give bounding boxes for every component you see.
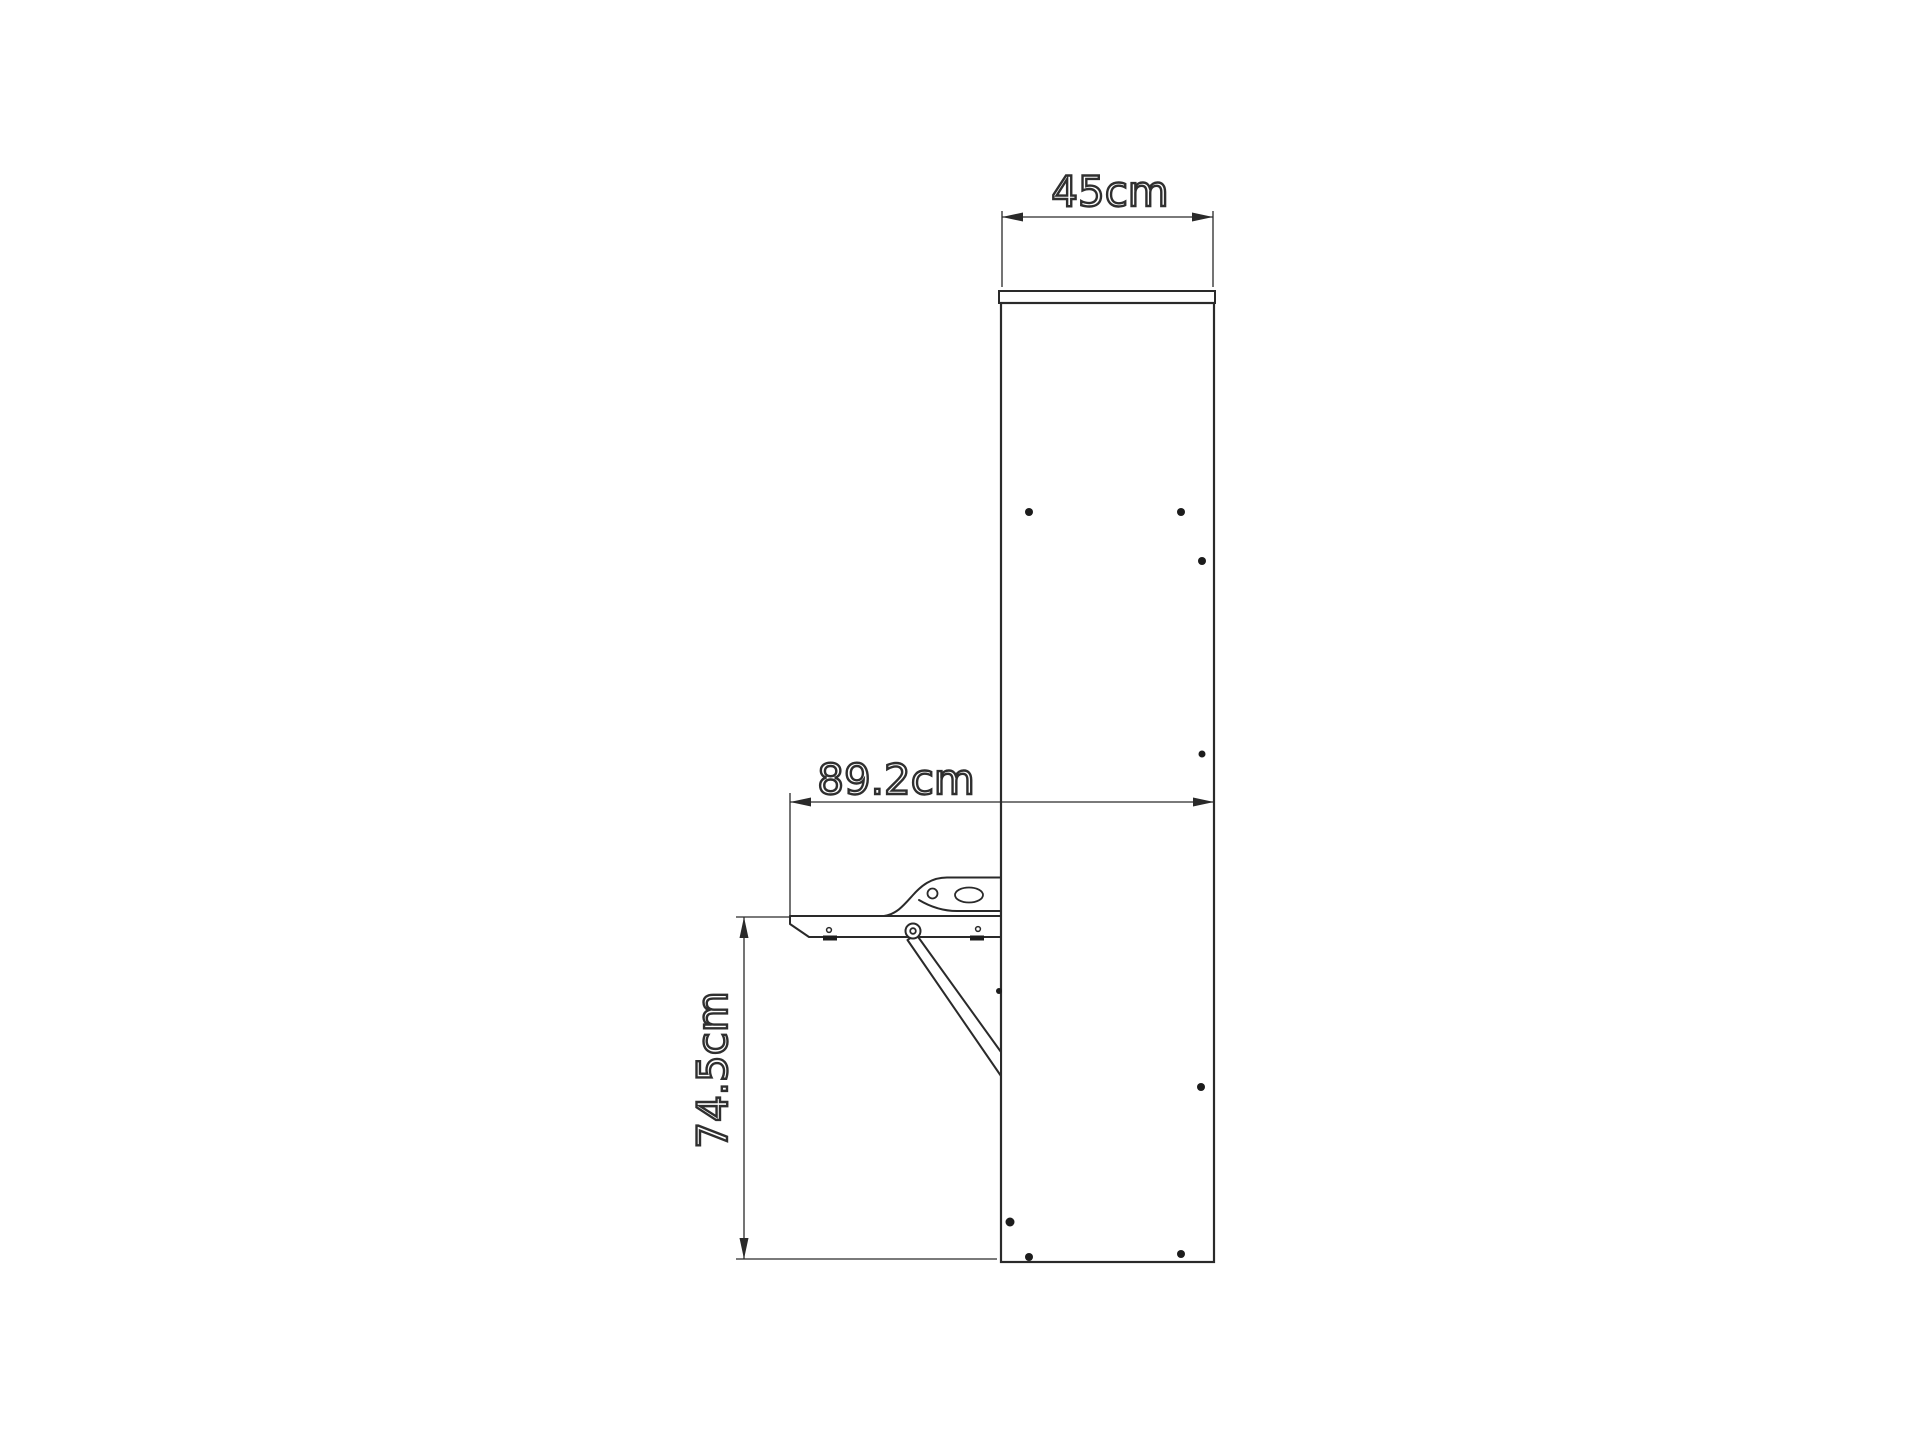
arrowhead-left xyxy=(1002,213,1023,222)
table-support-strut xyxy=(908,934,1002,1076)
arrowhead-down xyxy=(740,1238,749,1259)
arrowhead-right xyxy=(1192,213,1213,222)
pivot-hinge-outer xyxy=(906,924,921,939)
mounting-dot xyxy=(1177,508,1185,516)
cabinet-top-panel xyxy=(999,291,1215,303)
leaf-screw-right xyxy=(976,927,981,932)
leaf-tab-right xyxy=(970,936,984,941)
bracket-hole xyxy=(928,889,938,899)
cabinet-outline-group xyxy=(999,291,1215,1262)
mounting-dot xyxy=(1006,1218,1015,1227)
drawing-canvas: 45cm 89.2cm 74.5cm xyxy=(0,0,1920,1440)
bracket-slot xyxy=(955,888,983,903)
mounting-dot xyxy=(1199,751,1206,758)
mounting-dot xyxy=(1197,1083,1205,1091)
leaf-screw-left xyxy=(827,928,832,933)
leaf-tab-left xyxy=(823,936,837,941)
height-dimension-label: 74.5cm xyxy=(688,991,737,1149)
depth-dimension-label: 45cm xyxy=(1051,167,1168,216)
arrowhead-left xyxy=(790,798,811,807)
technical-drawing-svg: 45cm 89.2cm 74.5cm xyxy=(0,0,1920,1440)
mounting-dot xyxy=(1198,557,1206,565)
table-leaf-group xyxy=(790,878,1001,1077)
reach-dimension-label: 89.2cm xyxy=(817,755,975,804)
mounting-dot xyxy=(1177,1250,1185,1258)
mounting-dot xyxy=(996,988,1002,994)
arrowhead-up xyxy=(740,917,749,938)
table-leaf-underside xyxy=(790,916,1001,937)
mounting-dot xyxy=(1025,1253,1033,1261)
mounting-dot xyxy=(1025,508,1033,516)
cabinet-body xyxy=(1001,303,1214,1262)
